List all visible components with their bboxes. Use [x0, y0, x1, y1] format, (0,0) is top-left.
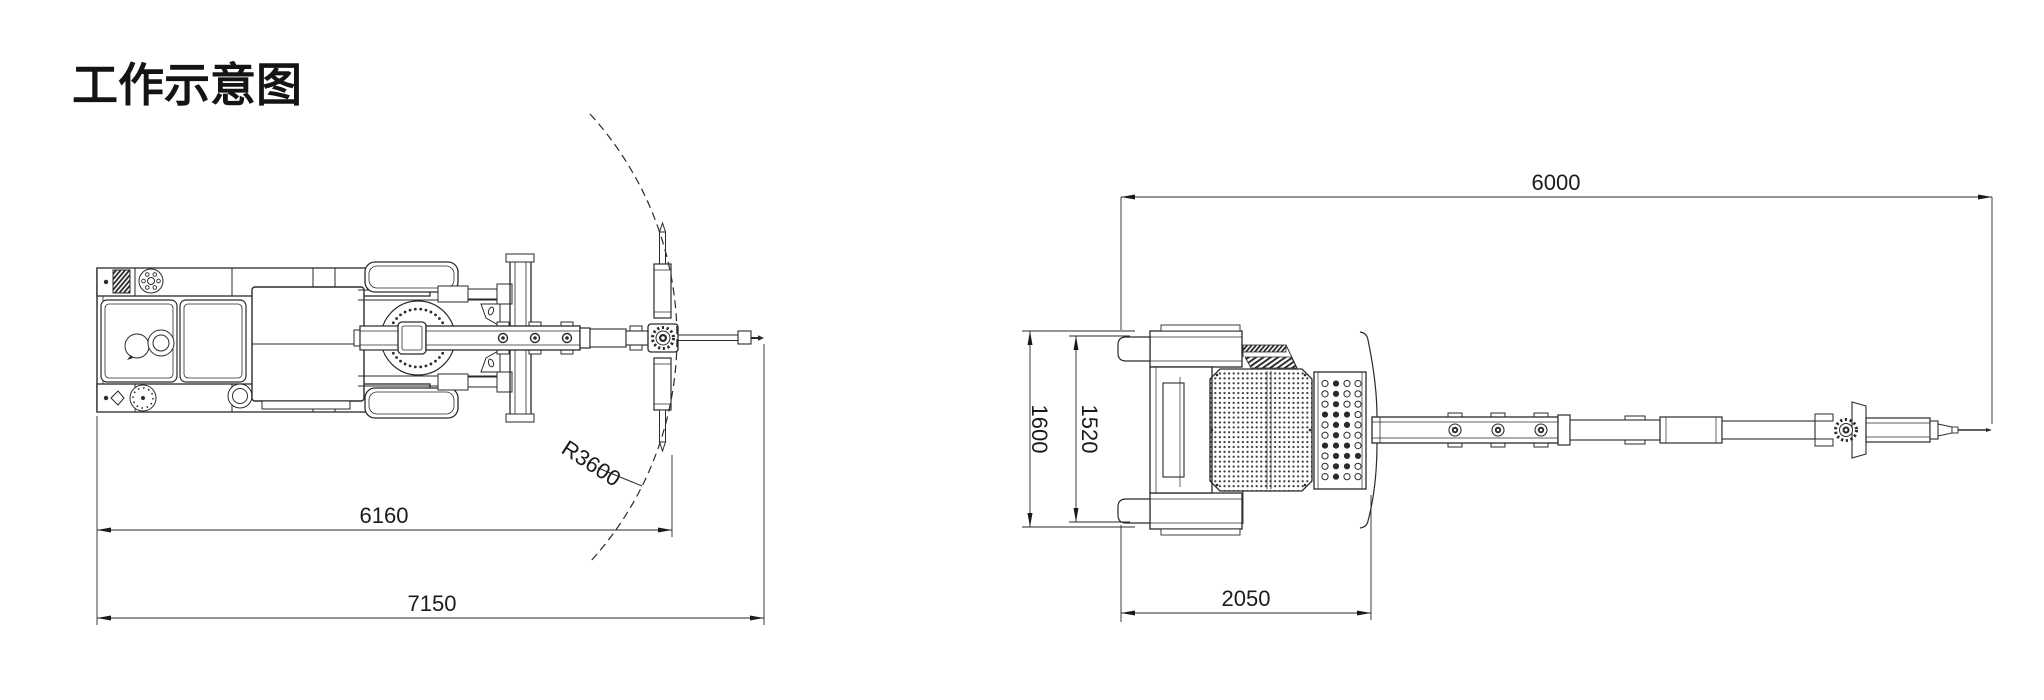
boom-folded	[1372, 413, 1815, 447]
track-bottom	[1150, 493, 1242, 529]
drill-head	[1815, 402, 1992, 458]
panel-cap	[148, 330, 174, 356]
track-front-bottom	[365, 388, 458, 418]
cap-ring	[228, 384, 252, 408]
drawing-canvas: 工作示意图	[0, 0, 2044, 700]
telescope-sleeve	[1660, 417, 1722, 443]
swing-cylinder	[360, 326, 400, 350]
dim-inner-width-label: 1520	[1077, 405, 1102, 454]
page-title: 工作示意图	[72, 59, 302, 111]
drill-mast	[648, 223, 678, 451]
dim-total-length-label: 7150	[408, 591, 457, 616]
panel-right	[180, 300, 246, 382]
dim-track-width-label: 1600	[1027, 405, 1052, 454]
drill-rod	[678, 331, 764, 344]
schematic-svg: 工作示意图	[0, 0, 2044, 700]
right-view-machine	[1118, 325, 1992, 535]
track-top	[1150, 331, 1242, 367]
dim-swing-radius-label: R3600	[557, 435, 625, 491]
grille-plate	[1314, 372, 1366, 489]
dim-overall-length-label: 6000	[1532, 170, 1581, 195]
dim-rear-length-label: 2050	[1222, 586, 1271, 611]
rear-body	[1150, 367, 1212, 493]
drifter	[1866, 418, 1930, 442]
perforated-plate	[1210, 369, 1312, 491]
dim-working-length-label: 6160	[360, 503, 409, 528]
left-view-machine	[97, 114, 764, 562]
hatch-block	[113, 270, 130, 293]
exhaust-hatch	[1243, 345, 1297, 368]
boom	[426, 322, 648, 354]
